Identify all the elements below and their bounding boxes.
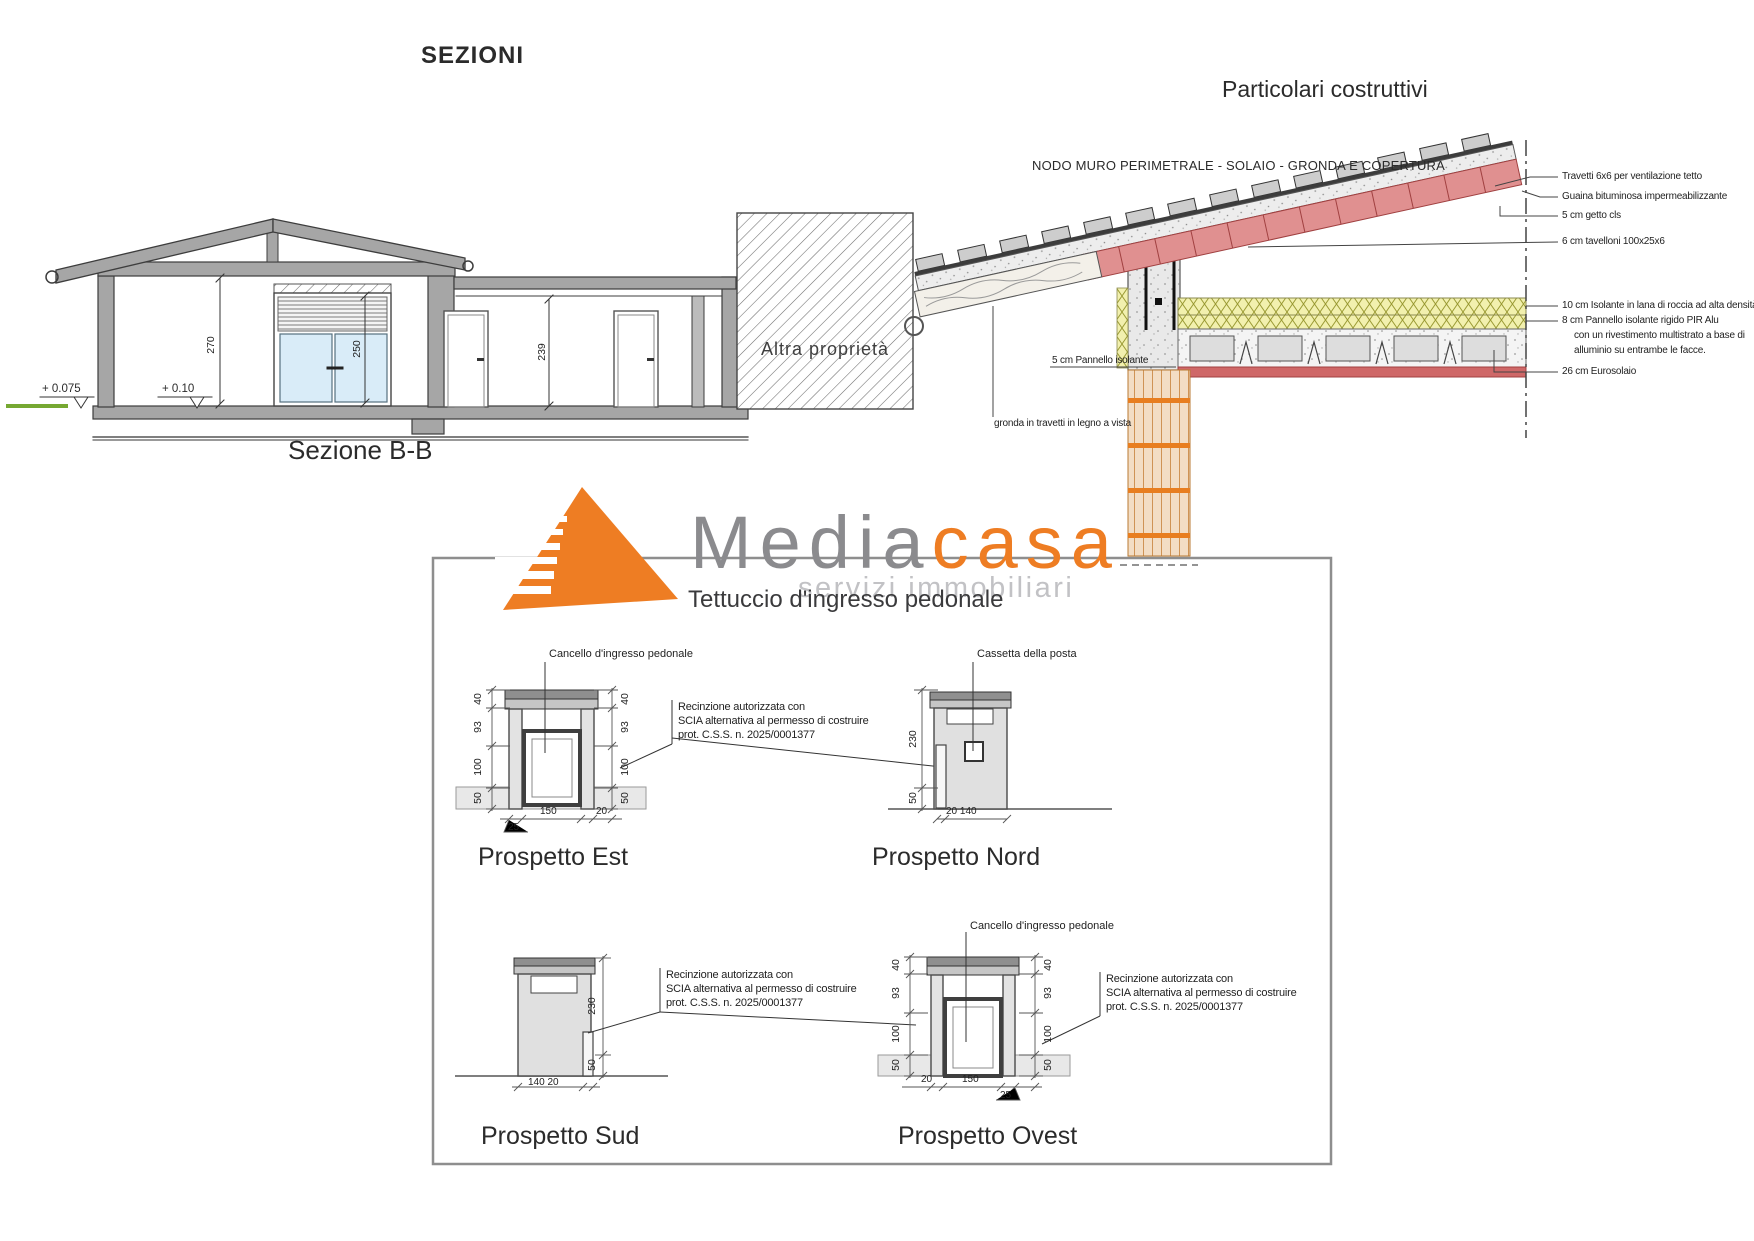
dim-label: 40 xyxy=(890,959,902,971)
mediacasa-logo-icon xyxy=(495,487,678,610)
dim-label: 93 xyxy=(472,721,484,733)
dim-label: 93 xyxy=(890,987,902,999)
window-blinds xyxy=(278,297,387,331)
recinzione-note-line: Recinzione autorizzata con xyxy=(678,700,805,714)
detail-label: 26 cm Eurosolaio xyxy=(1562,366,1636,378)
dim-label: 50 xyxy=(890,1059,902,1071)
window-glass xyxy=(280,334,332,402)
detail-label: Guaina bituminosa impermeabilizzante xyxy=(1562,191,1727,203)
detail-label: gronda in travetti in legno a vista xyxy=(994,418,1131,430)
page-title-sezioni: SEZIONI xyxy=(421,42,524,70)
recinzione-note-line: prot. C.S.S. n. 2025/0001377 xyxy=(1106,1000,1243,1014)
tettuccio-title: Tettuccio d'ingresso pedonale xyxy=(688,586,1003,614)
cancello-label: Cancello d'ingresso pedonale xyxy=(970,920,1114,933)
dim-label: 50 xyxy=(619,792,631,804)
altra-proprieta-block xyxy=(737,213,913,409)
detail-label: 8 cm Pannello isolante rigido PIR Alu xyxy=(1562,315,1719,327)
dim-label: 20 xyxy=(921,1074,932,1086)
dim-label: 93 xyxy=(1042,987,1054,999)
intonaco-red-strip xyxy=(1178,367,1526,377)
gate-post-edge xyxy=(936,745,946,808)
detail-label: 10 cm Isolante in lana di roccia ad alta… xyxy=(1562,300,1754,312)
recinzione-note-line: SCIA alternativa al permesso di costruir… xyxy=(666,982,857,996)
sezione-caption: Sezione B-B xyxy=(288,436,433,466)
door xyxy=(444,311,488,407)
pir-band xyxy=(1178,315,1526,329)
dim-label: 20 xyxy=(596,806,607,818)
prospetto-ovest-drawing xyxy=(878,932,1100,1100)
dim-label: 100 xyxy=(1042,1025,1054,1043)
detail-label: con un rivestimento multistrato a base d… xyxy=(1574,330,1745,342)
recinzione-note-line: Recinzione autorizzata con xyxy=(666,968,793,982)
dim-label: 40 xyxy=(619,693,631,705)
prospetto-est-title: Prospetto Est xyxy=(478,843,628,872)
detail-label: Travetti 6x6 per ventilazione tetto xyxy=(1562,171,1702,183)
dim-label: 100 xyxy=(472,758,484,776)
detail-label: 5 cm getto cls xyxy=(1562,210,1621,222)
prospetto-nord-title: Prospetto Nord xyxy=(872,843,1040,872)
sezione-bb-drawing xyxy=(6,213,913,440)
prospetto-nord-drawing xyxy=(888,662,1112,823)
dim-label: 100 xyxy=(890,1025,902,1043)
dim-label: 50 xyxy=(586,1059,598,1071)
dim-label: 140 20 xyxy=(528,1077,559,1089)
dim-label: 93 xyxy=(619,721,631,733)
cancello-label: Cancello d'ingresso pedonale xyxy=(549,648,693,661)
drawing-sheet: SEZIONI Particolari costruttivi NODO MUR… xyxy=(0,0,1754,1241)
rockwool-band xyxy=(1178,298,1526,315)
mailbox xyxy=(965,742,983,761)
page-title-particolari: Particolari costruttivi xyxy=(1222,76,1428,102)
ground-green-line xyxy=(6,404,68,408)
dim-label: 40 xyxy=(472,693,484,705)
recinzione-note-line: prot. C.S.S. n. 2025/0001377 xyxy=(666,996,803,1010)
recinzione-note-line: prot. C.S.S. n. 2025/0001377 xyxy=(678,728,815,742)
dim-label: 250 xyxy=(351,340,363,358)
detail-label: alluminio su entrambe le facce. xyxy=(1574,345,1706,357)
dim-label: 25 xyxy=(508,822,519,834)
window-lintel-hatch xyxy=(274,284,391,293)
detail-label: 5 cm Pannello isolante xyxy=(1052,355,1148,367)
dim-label: 40 xyxy=(1042,959,1054,971)
dim-label: 50 xyxy=(907,792,919,804)
linework-layer xyxy=(0,0,1754,1241)
timber-wall xyxy=(1128,370,1190,556)
prospetto-est-drawing xyxy=(456,662,942,832)
dim-label: 239 xyxy=(536,343,548,361)
prospetto-ovest-title: Prospetto Ovest xyxy=(898,1122,1077,1151)
level-label: + 0.10 xyxy=(162,383,194,396)
recinzione-note-line: Recinzione autorizzata con xyxy=(1106,972,1233,986)
dim-label: 230 xyxy=(586,997,598,1015)
detail-label: 6 cm tavelloni 100x25x6 xyxy=(1562,236,1665,248)
prospetto-sud-title: Prospetto Sud xyxy=(481,1122,639,1151)
dim-label: 20 140 xyxy=(946,806,977,818)
dim-label: 50 xyxy=(1042,1059,1054,1071)
dim-label: 100 xyxy=(619,758,631,776)
dim-label: 150 xyxy=(962,1074,979,1086)
dim-label: 150 xyxy=(540,806,557,818)
recinzione-note-line: SCIA alternativa al permesso di costruir… xyxy=(1106,986,1297,1000)
nodo-title: NODO MURO PERIMETRALE - SOLAIO - GRONDA … xyxy=(1032,159,1445,174)
dim-label: 50 xyxy=(472,792,484,804)
dim-label: 270 xyxy=(205,336,217,354)
dim-label: 25 xyxy=(1000,1090,1011,1102)
door xyxy=(614,311,658,407)
cassetta-label: Cassetta della posta xyxy=(977,648,1077,661)
altra-proprieta-label: Altra proprietà xyxy=(740,339,910,360)
level-label: + 0.075 xyxy=(42,383,81,396)
recinzione-note-line: SCIA alternativa al permesso di costruir… xyxy=(678,714,869,728)
dim-label: 230 xyxy=(907,730,919,748)
